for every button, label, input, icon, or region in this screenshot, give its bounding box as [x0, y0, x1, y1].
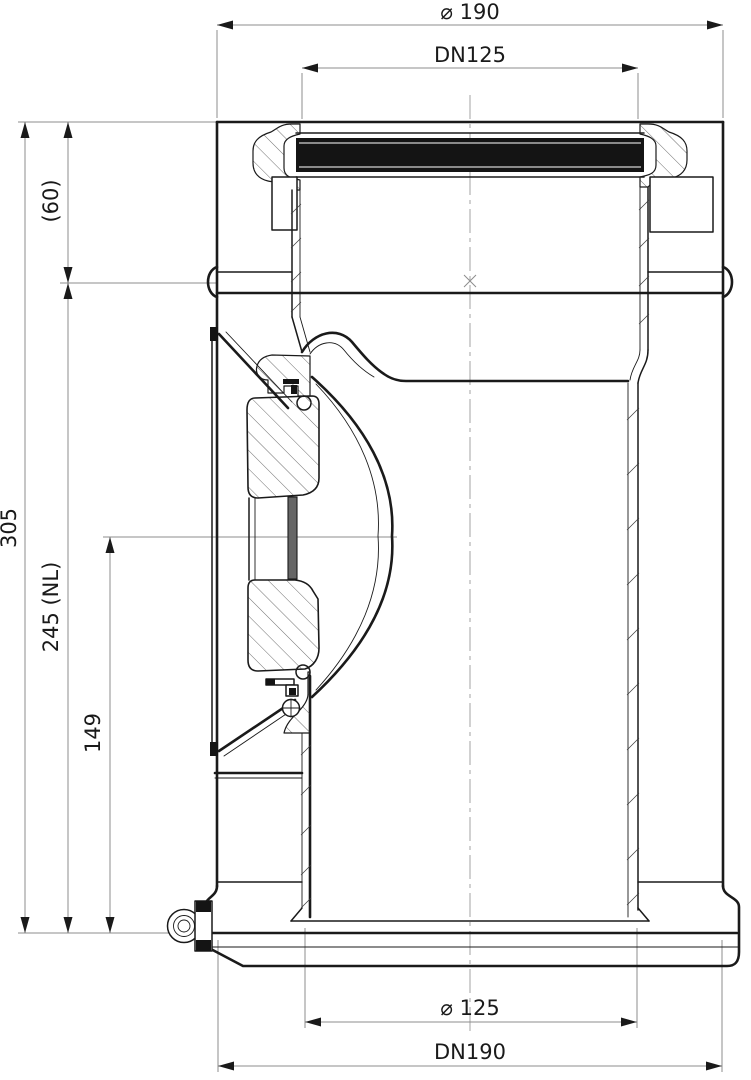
dim-label-socket-depth: (60) — [39, 179, 63, 222]
door-bolt — [282, 699, 300, 717]
inspection-door — [210, 327, 392, 756]
dim-label-outer-diameter-bottom: DN190 — [434, 1040, 506, 1064]
technical-drawing: ⌀ 190 DN125 305 (60) — [0, 0, 751, 1080]
dim-door-axis-height: 149 — [81, 537, 115, 933]
door-frame-top — [256, 355, 310, 396]
clamp-band-right — [650, 177, 713, 232]
bead-left — [208, 267, 217, 297]
door-insulation-lower — [248, 580, 319, 671]
condensate-drain — [168, 901, 213, 951]
door-opening-top-edge — [302, 333, 628, 381]
dim-label-flue-diameter-top: DN125 — [434, 43, 506, 67]
door-shaft — [288, 497, 297, 579]
dim-label-flue-diameter-bottom: ⌀ 125 — [440, 996, 499, 1020]
outer-jacket — [168, 122, 740, 966]
drawing-canvas: ⌀ 190 DN125 305 (60) — [0, 0, 751, 1080]
door-clip-top — [210, 327, 218, 341]
dim-label-outer-diameter-top: ⌀ 190 — [440, 0, 499, 24]
dim-label-nominal-length: 245 (NL) — [39, 562, 63, 653]
dim-flue-diameter-bottom: ⌀ 125 — [305, 928, 637, 1028]
collar-wall-right — [207, 886, 739, 966]
dim-label-overall-height: 305 — [0, 508, 21, 548]
dim-socket-depth: (60) — [39, 122, 73, 283]
door-clip-bottom — [210, 742, 218, 756]
door-insulation-upper — [247, 396, 319, 498]
dim-label-door-axis-height: 149 — [81, 713, 105, 753]
clamp-band-left — [272, 177, 297, 230]
dim-nominal-length: 245 (NL) — [39, 283, 73, 933]
bead-right — [723, 267, 732, 297]
dim-overall-height: 305 — [0, 122, 30, 933]
